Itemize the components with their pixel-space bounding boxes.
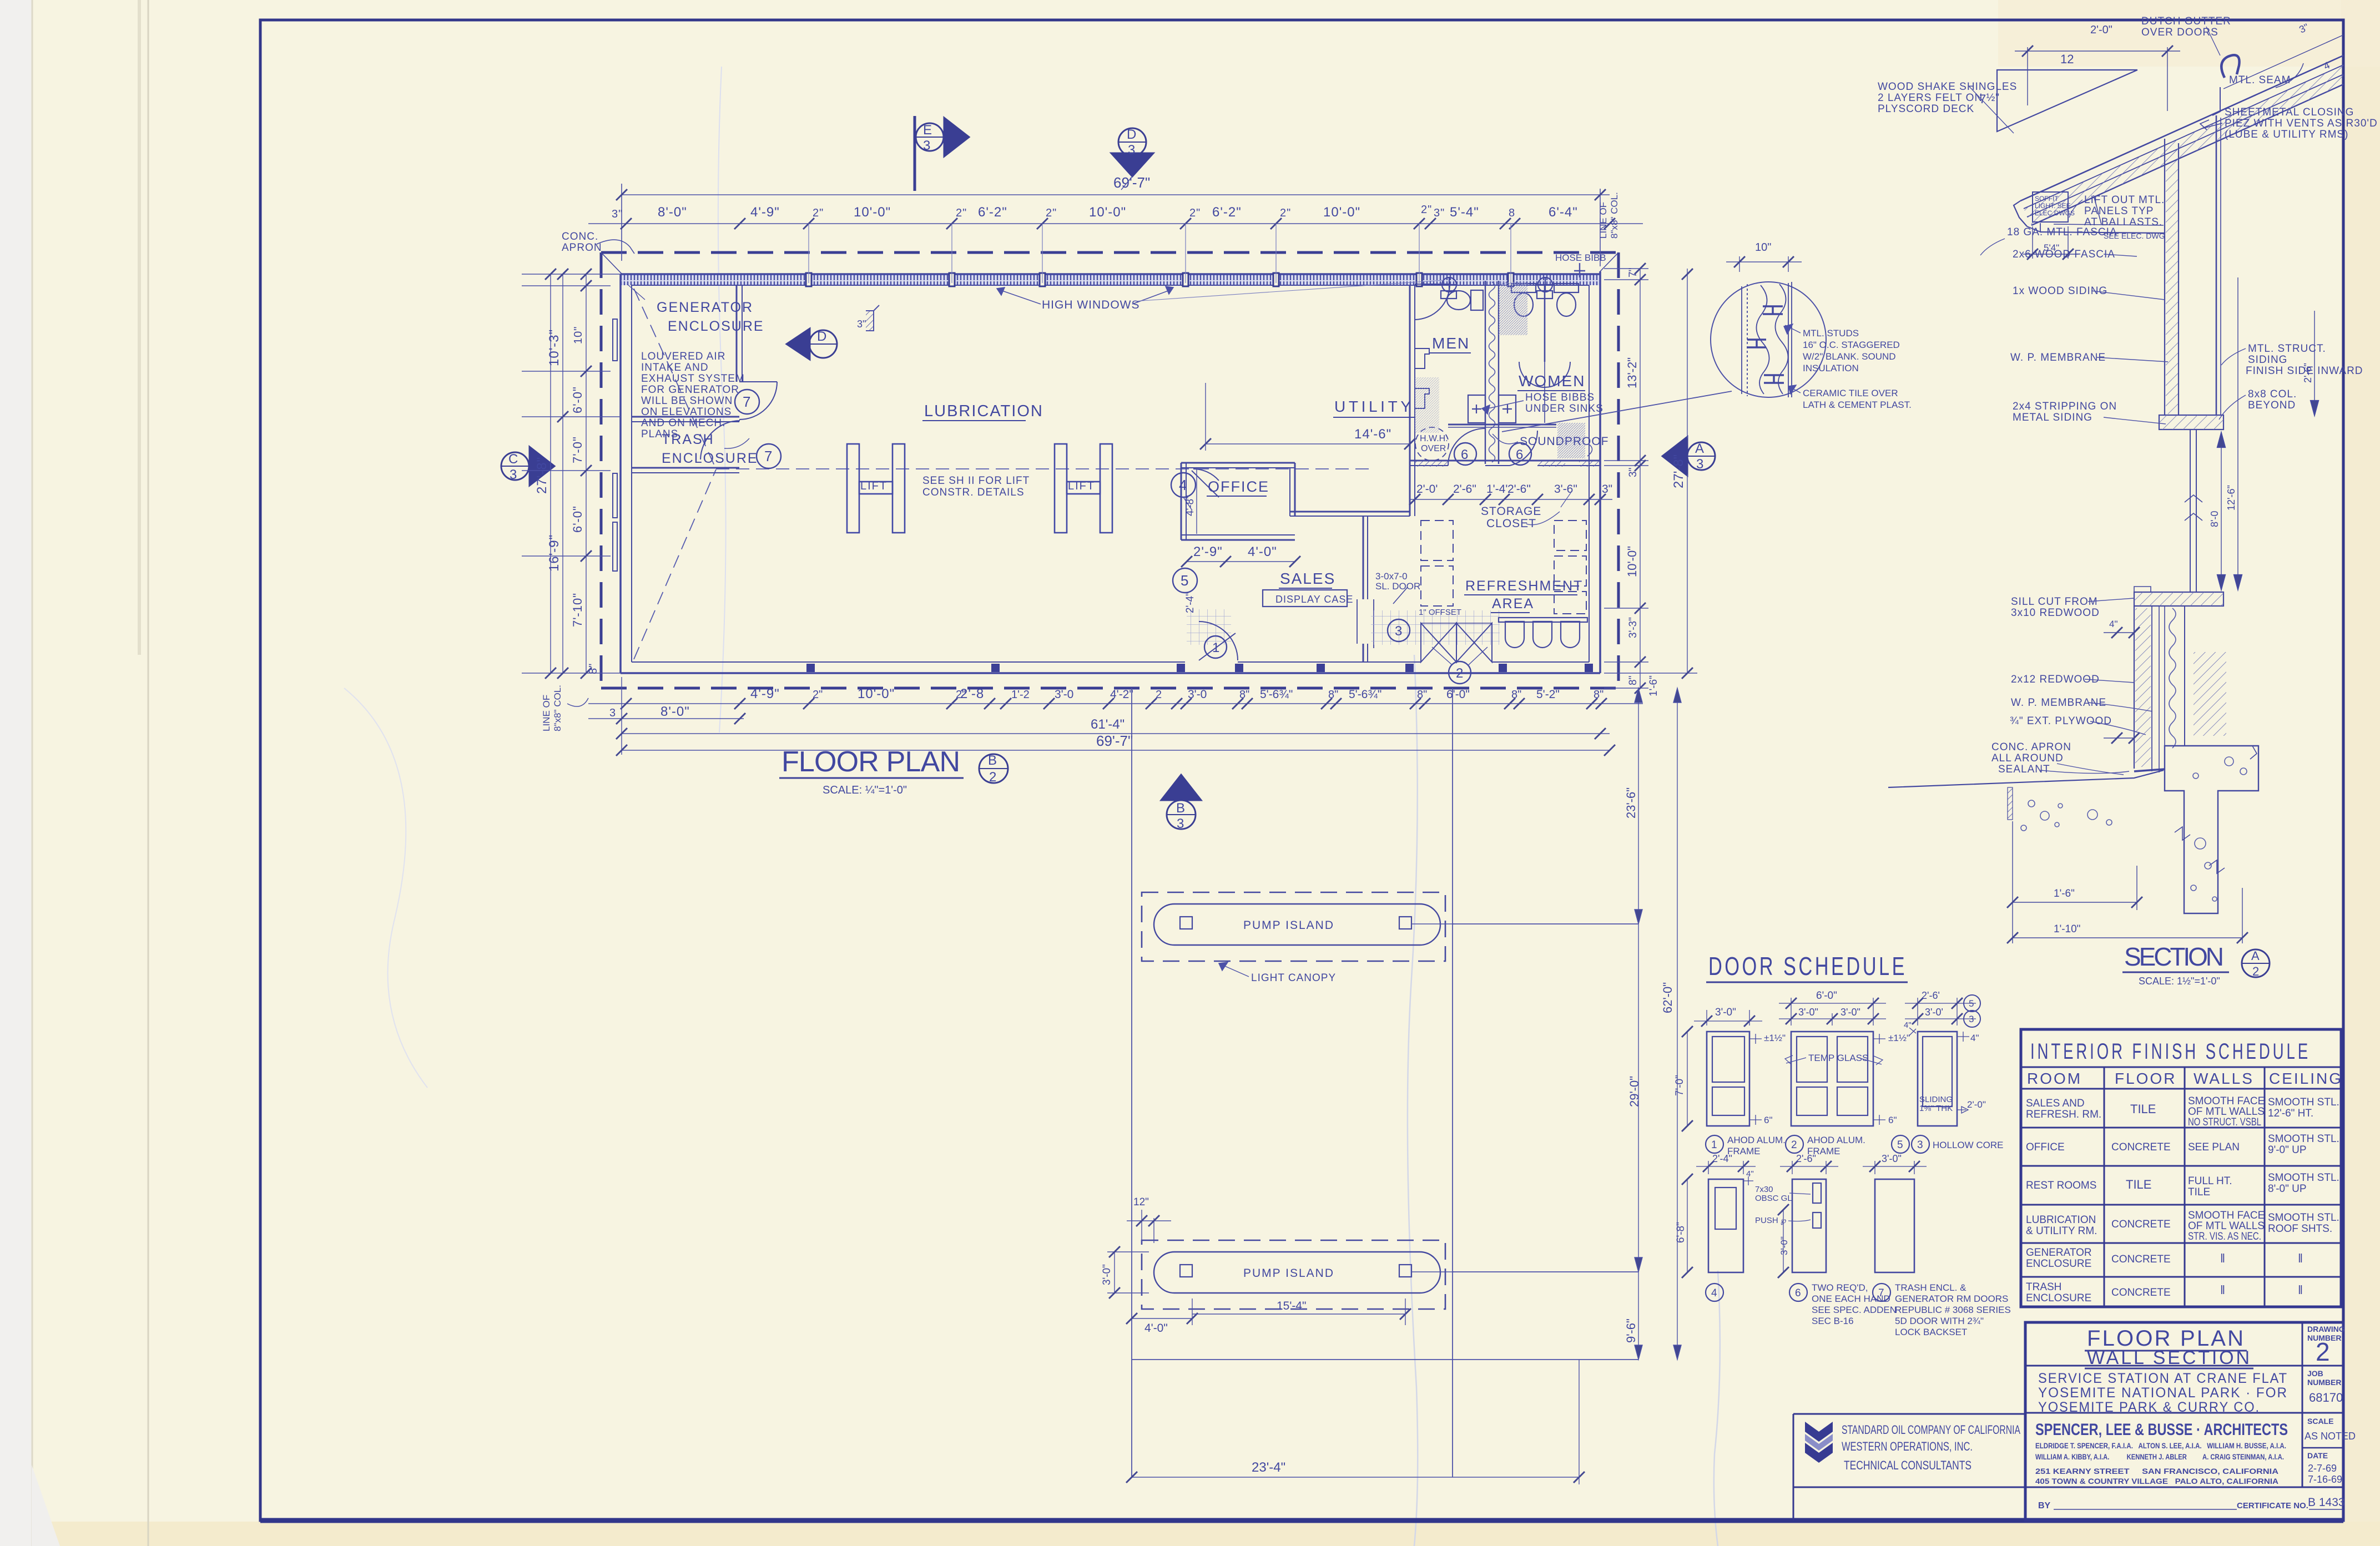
- svg-text:3": 3": [612, 208, 623, 220]
- svg-text:4": 4": [1746, 1169, 1754, 1179]
- svg-text:ENCLOSURE: ENCLOSURE: [668, 319, 764, 334]
- svg-text:AS NOTED: AS NOTED: [2305, 1431, 2356, 1442]
- svg-text:29'-0": 29'-0": [1627, 1076, 1641, 1107]
- svg-text:3'-6": 3'-6": [1554, 483, 1577, 496]
- svg-text:SALES AND: SALES AND: [2026, 1098, 2085, 1109]
- svg-text:4'-0": 4'-0": [1144, 1322, 1168, 1335]
- svg-text:2": 2": [813, 689, 823, 701]
- svg-text:4: 4: [1179, 477, 1187, 493]
- svg-text:NUMBER: NUMBER: [2307, 1378, 2341, 1387]
- svg-text:NO STRUCT. VSBL: NO STRUCT. VSBL: [2188, 1116, 2261, 1128]
- svg-text:27'-8": 27'-8": [1671, 454, 1686, 488]
- svg-text:7'-10": 7'-10": [571, 593, 584, 627]
- svg-text:YOSEMITE NATIONAL PARK · FOR: YOSEMITE NATIONAL PARK · FOR: [2038, 1385, 2288, 1401]
- svg-text:LUBRICATION: LUBRICATION: [2026, 1214, 2096, 1226]
- svg-text:2'-6": 2'-6": [2302, 363, 2313, 383]
- svg-text:‖: ‖: [2298, 1283, 2303, 1297]
- svg-text:STR. VIS. AS NEC.: STR. VIS. AS NEC.: [2188, 1231, 2261, 1242]
- svg-text:(LUBE & UTILITY RMS): (LUBE & UTILITY RMS): [2225, 129, 2348, 140]
- svg-text:12'-6" HT.: 12'-6" HT.: [2268, 1108, 2313, 1119]
- svg-text:B: B: [1176, 801, 1185, 816]
- svg-text:ALL AROUND: ALL AROUND: [1991, 752, 2064, 764]
- svg-text:5'-6¾": 5'-6¾": [1260, 688, 1293, 701]
- svg-text:2: 2: [1456, 666, 1463, 681]
- svg-text:SL. DOOR: SL. DOOR: [1375, 581, 1420, 592]
- svg-text:1'-6": 1'-6": [2054, 888, 2075, 900]
- svg-text:DISPLAY CASE: DISPLAY CASE: [1275, 594, 1353, 605]
- svg-text:405 TOWN & COUNTRY VILLAGE P: 405 TOWN & COUNTRY VILLAGE PALO ALTO, CA…: [2035, 1477, 2278, 1486]
- svg-text:LIFT OUT MTL.: LIFT OUT MTL.: [2084, 194, 2165, 206]
- svg-text:REFRESH. RM.: REFRESH. RM.: [2026, 1109, 2101, 1120]
- svg-text:SOFFIT: SOFFIT: [2035, 195, 2059, 203]
- svg-text:TWO REQ'D,: TWO REQ'D,: [1812, 1282, 1868, 1293]
- svg-text:2'-0": 2'-0": [2090, 24, 2112, 36]
- svg-text:2'-6": 2'-6": [1796, 1153, 1816, 1164]
- svg-text:ELEC.DWGS: ELEC.DWGS: [2035, 209, 2075, 217]
- svg-text:1⅜" THK: 1⅜" THK: [1919, 1104, 1953, 1113]
- svg-text:TECHNICAL CONSULTANTS: TECHNICAL CONSULTANTS: [1844, 1458, 1971, 1472]
- svg-text:7'-0": 7'-0": [571, 436, 584, 463]
- svg-text:4'-9": 4'-9": [750, 205, 780, 220]
- svg-text:INSULATION: INSULATION: [1803, 363, 1859, 373]
- svg-text:ENCLOSURE: ENCLOSURE: [662, 451, 758, 466]
- svg-text:REST ROOMS: REST ROOMS: [2026, 1180, 2096, 1191]
- svg-text:SMOOTH STL.: SMOOTH STL.: [2268, 1133, 2339, 1145]
- svg-text:7: 7: [764, 448, 772, 464]
- svg-text:CERTIFICATE NO.: CERTIFICATE NO.: [2237, 1501, 2308, 1510]
- svg-text:EXHAUST SYSTEM: EXHAUST SYSTEM: [641, 373, 745, 385]
- svg-text:4'-8": 4'-8": [1184, 495, 1196, 516]
- svg-text:6": 6": [1888, 1115, 1897, 1125]
- svg-text:D: D: [1127, 127, 1136, 142]
- svg-text:MEN: MEN: [1432, 335, 1470, 352]
- svg-text:ON ELEVATIONS: ON ELEVATIONS: [641, 406, 732, 418]
- svg-text:8": 8": [1417, 689, 1427, 701]
- svg-text:SCALE: 1½"=1'-0": SCALE: 1½"=1'-0": [2139, 976, 2220, 987]
- svg-text:SMOOTH FACE: SMOOTH FACE: [2188, 1095, 2265, 1107]
- svg-text:‖: ‖: [2220, 1283, 2225, 1297]
- svg-text:6'-0": 6'-0": [1446, 688, 1470, 701]
- svg-text:6": 6": [1764, 1115, 1773, 1125]
- svg-text:SMOOTH STL.: SMOOTH STL.: [2268, 1097, 2339, 1108]
- svg-text:10": 10": [572, 326, 584, 344]
- svg-text:HOSE BIBBS: HOSE BIBBS: [1525, 392, 1595, 403]
- svg-text:2: 2: [989, 770, 996, 785]
- svg-text:6'-0": 6'-0": [571, 506, 584, 533]
- svg-text:7: 7: [1878, 1287, 1884, 1299]
- svg-text:6'-2": 6'-2": [978, 205, 1007, 220]
- svg-text:3: 3: [510, 467, 517, 482]
- svg-text:SEE SH II FOR LIFT: SEE SH II FOR LIFT: [922, 475, 1030, 487]
- svg-text:5D DOOR WITH 2¾": 5D DOOR WITH 2¾": [1895, 1316, 1984, 1326]
- svg-text:8": 8": [1594, 689, 1604, 701]
- svg-text:1'-10": 1'-10": [2054, 923, 2080, 935]
- svg-text:2": 2": [1046, 207, 1057, 219]
- svg-text:FRAME: FRAME: [1727, 1146, 1761, 1156]
- svg-text:AHOD ALUM.: AHOD ALUM.: [1807, 1135, 1865, 1145]
- svg-text:2 LAYERS FELT ON ½": 2 LAYERS FELT ON ½": [1878, 92, 2000, 104]
- svg-text:LIGHT. SEE: LIGHT. SEE: [2035, 202, 2071, 210]
- svg-text:SALES: SALES: [1280, 570, 1335, 587]
- svg-text:10'-0": 10'-0": [1323, 205, 1360, 220]
- svg-text:ELDRIDGE T. SPENCER, F.A.I.A.: ELDRIDGE T. SPENCER, F.A.I.A. ALTON S. L…: [2035, 1442, 2286, 1450]
- svg-text:8'-0: 8'-0: [2209, 511, 2220, 527]
- svg-text:5'-4": 5'-4": [1450, 205, 1479, 220]
- svg-text:2'-4": 2'-4": [1184, 592, 1196, 613]
- svg-text:3-0x7-0: 3-0x7-0: [1375, 571, 1408, 582]
- svg-text:3: 3: [1395, 624, 1402, 639]
- svg-text:8": 8": [1328, 689, 1338, 701]
- svg-text:GENERATOR: GENERATOR: [2026, 1247, 2092, 1259]
- svg-text:5: 5: [1897, 1139, 1903, 1151]
- svg-text:OVER: OVER: [1421, 444, 1446, 453]
- svg-text:3'-0": 3'-0": [1798, 1007, 1818, 1018]
- svg-text:GENERATOR RM DOORS: GENERATOR RM DOORS: [1895, 1294, 2008, 1304]
- svg-text:2'-6": 2'-6": [1507, 483, 1531, 496]
- svg-text:CONCRETE: CONCRETE: [2111, 1141, 2171, 1153]
- svg-text:SOUNDPROOF: SOUNDPROOF: [1520, 435, 1609, 448]
- svg-text:SECTION: SECTION: [2124, 942, 2227, 971]
- svg-text:FLOOR: FLOOR: [2115, 1070, 2176, 1087]
- svg-text:ENCLOSURE: ENCLOSURE: [2026, 1258, 2091, 1270]
- svg-text:PIEZ WITH VENTS AS R30'D: PIEZ WITH VENTS AS R30'D: [2225, 118, 2378, 129]
- svg-text:3": 3": [1627, 468, 1639, 477]
- svg-text:AND ON MECH.: AND ON MECH.: [641, 417, 725, 429]
- svg-text:6: 6: [1795, 1287, 1801, 1299]
- svg-text:12'-6": 12'-6": [2226, 485, 2237, 511]
- svg-text:ENCLOSURE: ENCLOSURE: [2026, 1292, 2091, 1304]
- svg-text:PUSH ℘: PUSH ℘: [1755, 1216, 1786, 1225]
- svg-text:CONCRETE: CONCRETE: [2111, 1219, 2171, 1230]
- svg-text:SLIDING: SLIDING: [1919, 1095, 1953, 1104]
- svg-text:SEALANT: SEALANT: [1998, 764, 2050, 775]
- svg-text:LATH & CEMENT PLAST.: LATH & CEMENT PLAST.: [1803, 400, 1912, 410]
- svg-text:5'-2": 5'-2": [1536, 688, 1560, 701]
- svg-text:CEILING: CEILING: [2269, 1070, 2343, 1087]
- svg-text:FULL HT.: FULL HT.: [2188, 1175, 2232, 1187]
- svg-text:4'-0": 4'-0": [1248, 544, 1277, 559]
- svg-text:2: 2: [2316, 1337, 2330, 1366]
- svg-text:8": 8": [587, 663, 599, 674]
- svg-text:2: 2: [1156, 689, 1162, 701]
- svg-text:2'-8: 2'-8: [960, 686, 984, 701]
- svg-text:±1½": ±1½": [1888, 1033, 1910, 1043]
- svg-text:¾" EXT. PLYWOOD: ¾" EXT. PLYWOOD: [2010, 715, 2112, 727]
- svg-text:CONC. APRON: CONC. APRON: [1991, 741, 2071, 753]
- svg-text:METAL SIDING: METAL SIDING: [2013, 412, 2092, 423]
- svg-text:3'-3": 3'-3": [1627, 617, 1639, 638]
- svg-text:PLYSCORD DECK: PLYSCORD DECK: [1878, 103, 1974, 115]
- svg-text:12": 12": [1133, 1196, 1149, 1208]
- svg-text:3x10 REDWOOD: 3x10 REDWOOD: [2011, 607, 2100, 619]
- svg-text:SILL CUT FROM: SILL CUT FROM: [2011, 596, 2098, 608]
- svg-text:SMOOTH FACE: SMOOTH FACE: [2188, 1210, 2265, 1221]
- svg-text:1" OFFSET: 1" OFFSET: [1419, 608, 1461, 617]
- svg-text:8": 8": [1511, 689, 1521, 701]
- svg-text:2'-6': 2'-6': [1922, 990, 1940, 1001]
- svg-text:4": 4": [1970, 1033, 1979, 1043]
- svg-text:AREA: AREA: [1492, 596, 1534, 612]
- svg-text:2-7-69: 2-7-69: [2308, 1463, 2337, 1474]
- svg-text:TRASH ENCL. &: TRASH ENCL. &: [1895, 1282, 1966, 1293]
- svg-text:3'-0": 3'-0": [1779, 1236, 1789, 1255]
- svg-text:8"x8" COL.: 8"x8" COL.: [1609, 192, 1620, 239]
- svg-text:STANDARD OIL COMPANY OF CALIFO: STANDARD OIL COMPANY OF CALIFORNIA: [1842, 1423, 2020, 1437]
- svg-text:4": 4": [2109, 619, 2118, 629]
- svg-text:61'-4": 61'-4": [1091, 717, 1125, 732]
- svg-text:10'-0": 10'-0": [858, 686, 895, 701]
- svg-text:3'-0': 3'-0': [1925, 1007, 1943, 1018]
- svg-text:PANELS TYP: PANELS TYP: [2084, 205, 2154, 217]
- svg-text:OFFICE: OFFICE: [2026, 1141, 2065, 1153]
- svg-text:2'-4": 2'-4": [1712, 1153, 1732, 1164]
- svg-text:SCALE: SCALE: [2307, 1417, 2333, 1426]
- svg-text:3": 3": [1434, 207, 1445, 219]
- svg-text:SMOOTH STL.: SMOOTH STL.: [2268, 1212, 2339, 1224]
- svg-text:BEYOND: BEYOND: [2248, 400, 2296, 411]
- svg-text:69'-7": 69'-7": [1096, 732, 1133, 749]
- svg-text:6'-4": 6'-4": [1549, 205, 1578, 220]
- svg-text:A: A: [1695, 441, 1704, 456]
- svg-text:3: 3: [1969, 1014, 1974, 1024]
- svg-text:REPUBLIC # 3068 SERIES: REPUBLIC # 3068 SERIES: [1895, 1305, 2011, 1315]
- svg-text:TILE: TILE: [2188, 1186, 2210, 1198]
- svg-text:3": 3": [1602, 483, 1612, 496]
- svg-text:DRAWING: DRAWING: [2307, 1325, 2345, 1333]
- svg-text:C: C: [508, 452, 518, 467]
- svg-text:W. P. MEMBRANE: W. P. MEMBRANE: [2010, 352, 2106, 363]
- svg-text:2'-9": 2'-9": [1193, 544, 1223, 559]
- svg-text:PUMP ISLAND: PUMP ISLAND: [1243, 919, 1334, 932]
- svg-text:5'-6¾": 5'-6¾": [1349, 688, 1381, 701]
- svg-text:5: 5: [1969, 998, 1974, 1009]
- svg-text:WALLS: WALLS: [2194, 1070, 2254, 1087]
- svg-text:HOLLOW CORE: HOLLOW CORE: [1933, 1140, 2004, 1150]
- svg-text:B 1433: B 1433: [2308, 1496, 2345, 1509]
- svg-text:ROOM: ROOM: [2027, 1070, 2082, 1087]
- svg-text:2": 2": [1189, 207, 1201, 219]
- svg-text:18 GA. MTL. FASCIA: 18 GA. MTL. FASCIA: [2007, 226, 2117, 238]
- svg-text:27'-8": 27'-8": [535, 457, 549, 494]
- svg-text:9'-0" UP: 9'-0" UP: [2268, 1144, 2307, 1156]
- svg-text:3: 3: [1177, 816, 1184, 831]
- svg-text:14'-6": 14'-6": [1354, 427, 1391, 442]
- svg-text:15'-4": 15'-4": [1277, 1300, 1307, 1312]
- svg-text:3: 3: [1917, 1139, 1923, 1151]
- svg-text:CLOSET: CLOSET: [1486, 517, 1536, 530]
- svg-text:WALL SECTION: WALL SECTION: [2087, 1347, 2253, 1368]
- svg-text:A: A: [2251, 949, 2260, 963]
- svg-text:LINE OF: LINE OF: [541, 695, 552, 731]
- svg-text:8'-0" UP: 8'-0" UP: [2268, 1183, 2307, 1195]
- svg-text:SCALE: ¼"=1'-0": SCALE: ¼"=1'-0": [823, 784, 907, 796]
- svg-text:1'-4': 1'-4': [1486, 483, 1507, 496]
- svg-text:MTL. SEAM: MTL. SEAM: [2229, 74, 2291, 86]
- svg-text:CONC.: CONC.: [562, 231, 598, 242]
- svg-text:8x8 COL.: 8x8 COL.: [2248, 388, 2297, 400]
- svg-text:3: 3: [1696, 457, 1703, 472]
- svg-text:SERVICE STATION AT CRANE FLAT: SERVICE STATION AT CRANE FLAT: [2038, 1371, 2288, 1386]
- svg-text:3": 3": [857, 319, 866, 330]
- svg-text:APRON: APRON: [562, 242, 602, 254]
- svg-text:1'-6": 1'-6": [1648, 675, 1660, 696]
- svg-text:1'-2: 1'-2: [1011, 689, 1030, 701]
- svg-text:REFRESHMENT: REFRESHMENT: [1465, 578, 1583, 594]
- svg-text:251 KEARNY STREET SAN FRAN: 251 KEARNY STREET SAN FRANCISCO, CALIFOR…: [2035, 1467, 2278, 1476]
- svg-text:SEE SPEC. ADDEN: SEE SPEC. ADDEN: [1812, 1305, 1897, 1315]
- svg-text:B: B: [988, 753, 997, 768]
- svg-text:INTAKE AND: INTAKE AND: [641, 362, 709, 373]
- svg-text:7x30: 7x30: [1755, 1185, 1773, 1194]
- svg-text:6'-8": 6'-8": [1675, 1222, 1687, 1243]
- svg-text:2'-0": 2'-0": [1967, 1099, 1986, 1110]
- svg-text:4'-2": 4'-2": [1110, 688, 1133, 701]
- svg-text:10'-0": 10'-0": [1089, 205, 1126, 220]
- svg-text:SEC B-16: SEC B-16: [1812, 1316, 1854, 1326]
- svg-text:7": 7": [1627, 268, 1639, 277]
- svg-text:MTL. STUDS: MTL. STUDS: [1803, 328, 1859, 338]
- svg-text:3: 3: [1128, 143, 1135, 158]
- svg-text:5: 5: [1181, 572, 1188, 589]
- svg-text:WOOD SHAKE SHINGLES: WOOD SHAKE SHINGLES: [1878, 81, 2017, 93]
- svg-text:2x6 WOOD FASCIA: 2x6 WOOD FASCIA: [2013, 249, 2115, 260]
- svg-text:16'-9": 16'-9": [547, 534, 562, 572]
- svg-text:TRASH: TRASH: [662, 432, 714, 447]
- svg-text:LIGHT CANOPY: LIGHT CANOPY: [1251, 972, 1336, 984]
- svg-text:TRASH: TRASH: [2026, 1281, 2061, 1293]
- svg-text:OFFICE: OFFICE: [1208, 478, 1269, 495]
- svg-text:23'-4": 23'-4": [1252, 1460, 1285, 1475]
- svg-text:WILL BE SHOWN: WILL BE SHOWN: [641, 395, 733, 407]
- svg-text:SHEETMETAL CLOSING: SHEETMETAL CLOSING: [2225, 107, 2354, 118]
- svg-text:LIFT: LIFT: [860, 480, 888, 492]
- svg-text:TILE: TILE: [2126, 1178, 2151, 1191]
- svg-text:3'-0": 3'-0": [1715, 1007, 1736, 1018]
- svg-text:STORAGE: STORAGE: [1481, 505, 1541, 518]
- svg-text:9'-6": 9'-6": [1624, 1318, 1638, 1343]
- svg-text:3'-0: 3'-0: [1055, 688, 1073, 701]
- svg-text:YOSEMITE PARK & CURRY CO.: YOSEMITE PARK & CURRY CO.: [2038, 1400, 2260, 1415]
- svg-text:23'-6": 23'-6": [1624, 787, 1638, 819]
- svg-text:INTERIOR FINISH SCHEDULE: INTERIOR FINISH SCHEDULE: [2030, 1039, 2311, 1064]
- svg-text:3'-0": 3'-0": [1882, 1153, 1902, 1164]
- svg-text:UNDER SINKS: UNDER SINKS: [1525, 403, 1604, 415]
- svg-text:3: 3: [923, 138, 930, 153]
- svg-text:LOCK BACKSET: LOCK BACKSET: [1895, 1327, 1967, 1337]
- svg-text:7'-0": 7'-0": [1674, 1075, 1686, 1096]
- svg-text:8: 8: [1509, 207, 1515, 219]
- svg-text:JOB: JOB: [2307, 1369, 2323, 1378]
- svg-text:H.W.H.: H.W.H.: [1420, 434, 1448, 443]
- svg-text:SEE PLAN: SEE PLAN: [2188, 1141, 2240, 1153]
- svg-text:CONSTR. DETAILS: CONSTR. DETAILS: [922, 487, 1025, 498]
- svg-text:SMOOTH STL.: SMOOTH STL.: [2268, 1172, 2339, 1184]
- svg-text:DOOR SCHEDULE: DOOR SCHEDULE: [1708, 952, 1907, 981]
- svg-text:8'-0": 8'-0": [658, 205, 687, 220]
- svg-text:3'-0: 3'-0: [1188, 688, 1207, 701]
- svg-text:W/2" BLANK. SOUND: W/2" BLANK. SOUND: [1803, 351, 1896, 362]
- svg-text:1: 1: [1212, 640, 1219, 655]
- svg-text:16" O.C. STAGGERED: 16" O.C. STAGGERED: [1803, 340, 1900, 350]
- svg-text:FOR GENERATOR: FOR GENERATOR: [641, 384, 739, 396]
- svg-text:CERAMIC TILE OVER: CERAMIC TILE OVER: [1803, 388, 1898, 398]
- svg-text:HOSE BIBB: HOSE BIBB: [1555, 252, 1606, 263]
- svg-text:AHOD ALUM.: AHOD ALUM.: [1727, 1135, 1786, 1145]
- svg-text:2'-6": 2'-6": [1453, 483, 1476, 496]
- svg-text:LINE OF: LINE OF: [1598, 202, 1608, 239]
- svg-text:6'-0": 6'-0": [571, 386, 584, 413]
- svg-text:PUMP ISLAND: PUMP ISLAND: [1243, 1267, 1334, 1280]
- svg-text:2": 2": [956, 207, 967, 219]
- svg-text:4: 4: [1711, 1287, 1717, 1299]
- svg-text:2: 2: [1791, 1139, 1797, 1151]
- svg-text:‖: ‖: [2298, 1251, 2303, 1265]
- svg-text:8'-0": 8'-0": [660, 704, 690, 719]
- svg-text:WILLIAM A. KIBBY, A.I.A.: WILLIAM A. KIBBY, A.I.A. KENNETH J. ABLE…: [2035, 1453, 2284, 1461]
- svg-text:10'-0": 10'-0": [1625, 546, 1639, 577]
- svg-text:MTL. STRUCT.: MTL. STRUCT.: [2248, 343, 2326, 355]
- svg-text:WOMEN: WOMEN: [1519, 372, 1585, 390]
- svg-text:OF MTL WALLS: OF MTL WALLS: [2188, 1106, 2265, 1118]
- svg-text:WESTERN OPERATIONS, INC.: WESTERN OPERATIONS, INC.: [1842, 1439, 1973, 1453]
- svg-text:OBSC GL: OBSC GL: [1755, 1194, 1792, 1203]
- svg-text:6'-0": 6'-0": [1816, 990, 1837, 1002]
- svg-text:BY: BY: [2038, 1501, 2051, 1510]
- svg-text:2'-0': 2'-0': [1416, 483, 1438, 496]
- svg-text:3: 3: [609, 707, 616, 719]
- svg-text:TILE: TILE: [2130, 1102, 2156, 1116]
- svg-text:LIFT: LIFT: [1068, 480, 1095, 492]
- svg-text:1: 1: [1711, 1139, 1717, 1151]
- svg-text:4": 4": [1904, 1020, 1912, 1030]
- svg-text:ROOF SHTS.: ROOF SHTS.: [2268, 1223, 2332, 1235]
- svg-text:68170: 68170: [2309, 1391, 2343, 1404]
- svg-text:62'-0": 62'-0": [1661, 982, 1675, 1013]
- svg-text:8": 8": [1239, 689, 1249, 701]
- svg-text:E: E: [923, 123, 932, 138]
- svg-text:DUTCH GUTTER: DUTCH GUTTER: [2141, 16, 2231, 27]
- svg-text:6: 6: [1516, 447, 1523, 462]
- svg-text:2x4 STRIPPING ON: 2x4 STRIPPING ON: [2013, 401, 2117, 412]
- svg-text:12: 12: [2060, 52, 2074, 66]
- svg-text:SPENCER, LEE & BUSSE · ARCHITE: SPENCER, LEE & BUSSE · ARCHITECTS: [2035, 1421, 2288, 1439]
- svg-text:HIGH WINDOWS: HIGH WINDOWS: [1042, 299, 1139, 311]
- svg-text:13'-2": 13'-2": [1625, 357, 1639, 388]
- svg-text:LOUVERED AIR: LOUVERED AIR: [641, 351, 725, 362]
- svg-text:D: D: [817, 329, 826, 344]
- svg-text:2": 2": [813, 207, 824, 219]
- svg-text:FLOOR PLAN: FLOOR PLAN: [781, 746, 965, 778]
- svg-text:10": 10": [1755, 241, 1771, 254]
- svg-text:7: 7: [743, 393, 750, 410]
- svg-text:3'-0": 3'-0": [1101, 1264, 1113, 1285]
- svg-text:10'-0": 10'-0": [854, 205, 891, 220]
- svg-text:‖: ‖: [2220, 1251, 2225, 1265]
- svg-text:6'-2": 6'-2": [1212, 205, 1242, 220]
- svg-text:3'-0": 3'-0": [1841, 1007, 1860, 1018]
- svg-text:CONCRETE: CONCRETE: [2111, 1254, 2171, 1265]
- svg-text:10'-3": 10'-3": [547, 329, 562, 366]
- svg-text:2": 2": [1280, 207, 1291, 219]
- svg-text:SIDING: SIDING: [2248, 354, 2287, 366]
- svg-text:8": 8": [1627, 676, 1639, 685]
- svg-text:4'-9": 4'-9": [750, 686, 780, 701]
- svg-text:2": 2": [1421, 204, 1432, 216]
- svg-text:8"x8" COL.: 8"x8" COL.: [552, 685, 563, 731]
- svg-text:LUBRICATION: LUBRICATION: [924, 402, 1043, 420]
- svg-text:GENERATOR: GENERATOR: [657, 300, 753, 315]
- svg-text:7-16-69: 7-16-69: [2308, 1474, 2342, 1485]
